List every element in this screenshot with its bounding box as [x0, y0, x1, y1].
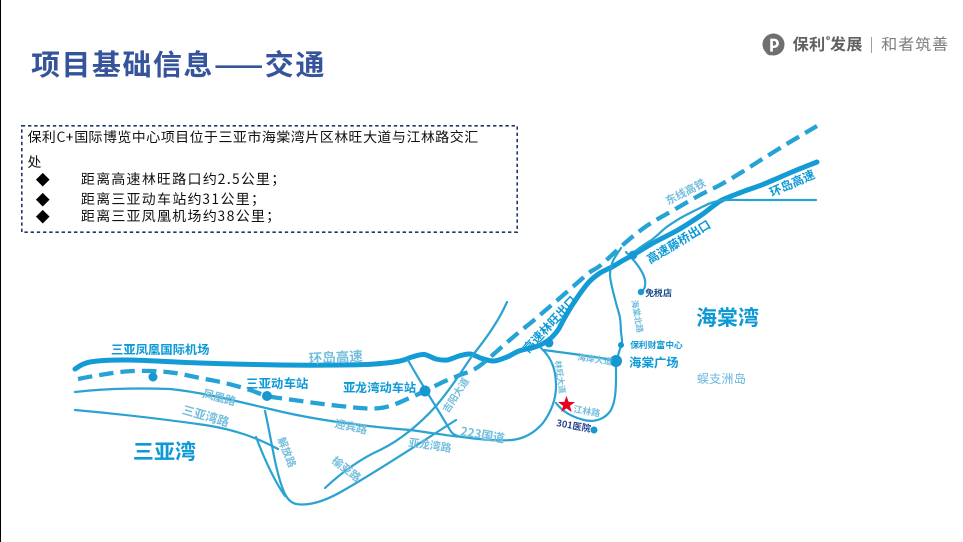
svg-text:解放路: 解放路 — [274, 435, 300, 470]
svg-text:三亚动车站: 三亚动车站 — [246, 373, 309, 392]
svg-text:223国道: 223国道 — [459, 422, 506, 446]
svg-text:301医院: 301医院 — [555, 415, 592, 435]
svg-text:蜈支洲岛: 蜈支洲岛 — [697, 369, 746, 387]
svg-text:三亚湾: 三亚湾 — [133, 436, 196, 466]
svg-text:免税店: 免税店 — [644, 286, 672, 299]
svg-text:迎宾路: 迎宾路 — [333, 415, 370, 438]
svg-text:海棠湾: 海棠湾 — [696, 302, 759, 332]
svg-text:凤凰路: 凤凰路 — [201, 385, 238, 409]
svg-text:海棠北路: 海棠北路 — [629, 299, 647, 334]
svg-text:海岸大道: 海岸大道 — [576, 350, 614, 368]
svg-text:环岛高速: 环岛高速 — [308, 345, 363, 368]
svg-text:林旺大道: 林旺大道 — [552, 360, 569, 395]
svg-text:亚龙湾路: 亚龙湾路 — [407, 434, 453, 456]
svg-text:亚龙湾动车站: 亚龙湾动车站 — [343, 378, 417, 396]
svg-text:保利财富中心: 保利财富中心 — [629, 338, 683, 351]
svg-text:三亚凤凰国际机场: 三亚凤凰国际机场 — [111, 340, 209, 358]
svg-text:海棠广场: 海棠广场 — [629, 353, 679, 371]
